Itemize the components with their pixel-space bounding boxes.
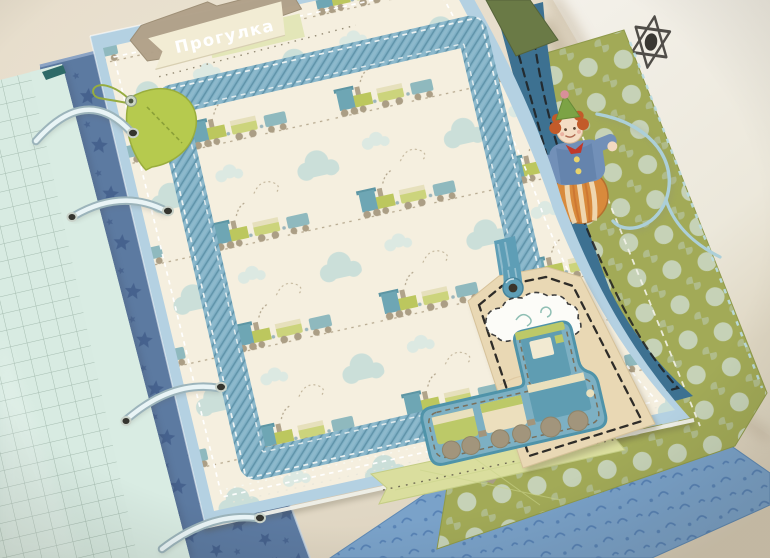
- vignette: [0, 0, 770, 558]
- scene-canvas: Прогулка: [0, 0, 770, 558]
- scrapbook-photo: Прогулка: [0, 0, 770, 558]
